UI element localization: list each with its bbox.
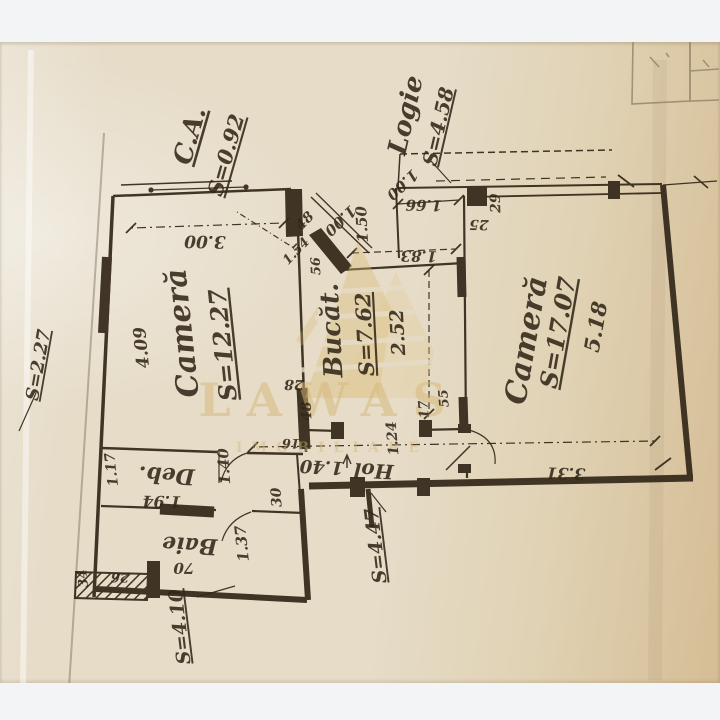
dim-entry-wall: 1.50 <box>352 205 372 243</box>
adjacent-plan-fragment <box>632 42 719 104</box>
dim-wall-26: 26 <box>111 569 130 584</box>
dim-wall-48: 48 <box>298 401 315 422</box>
dim-logie-end: 29 <box>488 193 505 214</box>
label-baie: Baie <box>161 531 219 560</box>
dim-deb-width: 1.94 <box>142 492 181 512</box>
bottom-white-band <box>0 683 720 720</box>
floorplan-photo: LAWAS IMOBILIARE C.A.S=0.92LogieS=4.58Ca… <box>0 0 720 720</box>
dim-wall-28: 28 <box>284 376 305 392</box>
label-bucatarie-area: S=7.62 <box>350 292 379 377</box>
dim-camera-left-length: 4.09 <box>130 326 154 369</box>
label-area-bottom-left: S=4.10 <box>165 588 196 666</box>
dim-bucatarie-top: 1.83 <box>400 247 437 266</box>
dim-camera-right-length: 5.18 <box>579 299 613 354</box>
dim-bucatarie-width: 2.52 <box>386 309 410 357</box>
dim-baie-length: 1.37 <box>231 524 253 563</box>
top-white-band <box>0 0 720 42</box>
dim-camera-left-width: 3.00 <box>184 231 226 252</box>
dim-baie-width: 70 <box>173 559 195 577</box>
label-hol: Hol <box>353 458 395 484</box>
label-ca-area: S=0.92 <box>202 111 249 199</box>
dim-hol-width: 1.40 <box>299 455 344 478</box>
dim-wall-55: 55 <box>436 389 453 408</box>
dim-baie-wall: 30 <box>268 487 285 508</box>
dim-deb-door: 1.40 <box>214 447 235 485</box>
dim-wall-34: 34 <box>75 569 92 589</box>
label-ca: C.A. <box>168 104 213 169</box>
dim-camera-right-width: 3.31 <box>546 463 586 483</box>
floorplan-drawing: LAWAS IMOBILIARE C.A.S=0.92LogieS=4.58Ca… <box>0 0 720 720</box>
label-deb: Deb. <box>138 461 196 490</box>
label-camera-left: Cameră <box>158 267 206 399</box>
label-hol-area: S=4.47 <box>361 507 392 585</box>
dim-entry-56: 56 <box>309 257 325 276</box>
dim-logie-pillar: 25 <box>469 216 490 232</box>
dim-wall-16: 16 <box>282 435 300 450</box>
dim-bucatarie-door: 1.24 <box>384 421 403 456</box>
dim-wall-17: 17 <box>416 400 433 419</box>
label-bucatarie: Bucăt. <box>315 282 350 379</box>
dim-logie-window: 1.66 <box>405 196 442 215</box>
dim-deb-depth: 1.17 <box>102 451 122 487</box>
